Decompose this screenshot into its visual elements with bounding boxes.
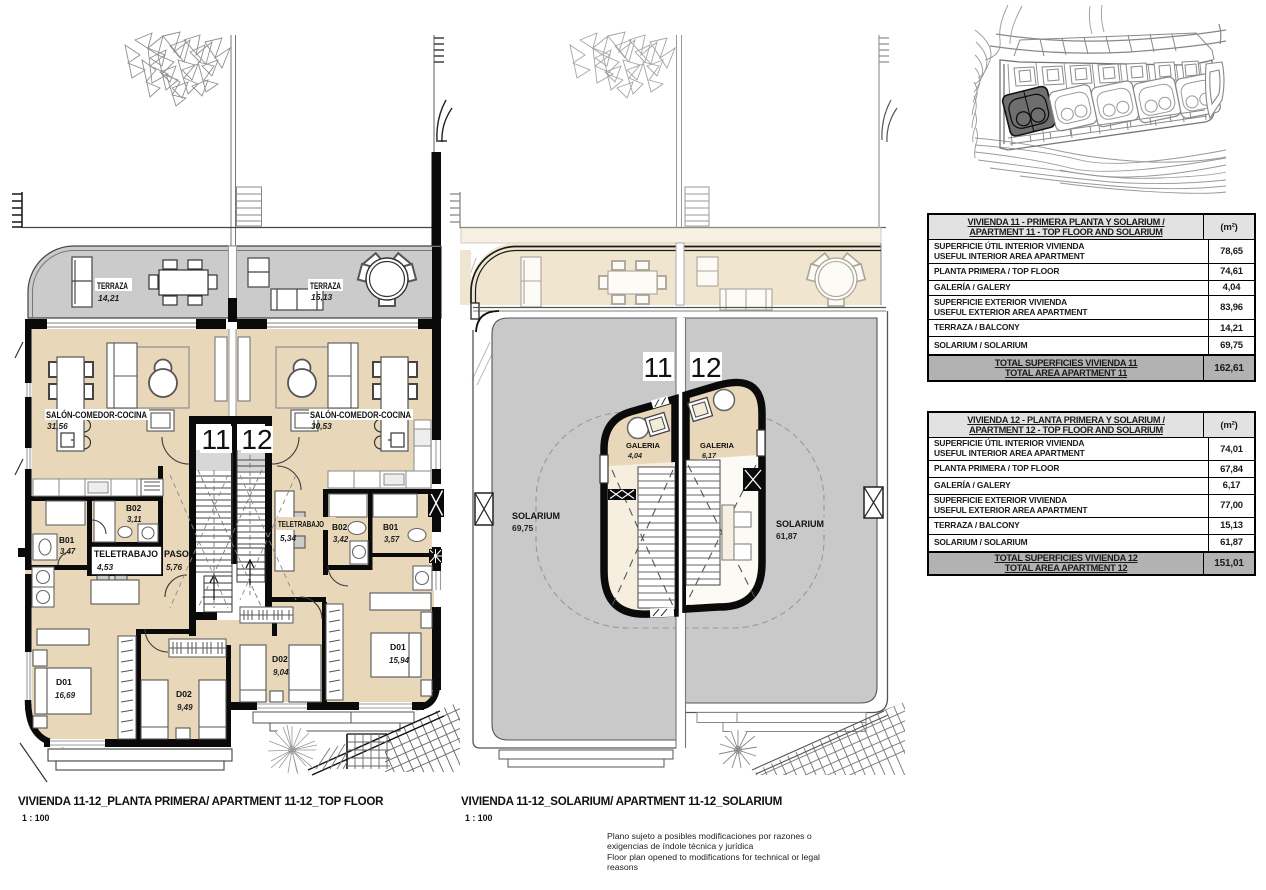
svg-text:9,49: 9,49 [177,703,193,712]
svg-text:3,11: 3,11 [127,515,142,524]
svg-text:D02: D02 [176,689,192,699]
svg-text:14,21: 14,21 [98,293,120,303]
svg-text:9,04: 9,04 [273,668,289,677]
svg-text:TERRAZA: TERRAZA [97,281,128,292]
svg-text:12: 12 [241,424,272,455]
svg-text:TELETRABAJO: TELETRABAJO [278,519,324,529]
svg-text:PASO: PASO [164,549,189,559]
svg-text:3,42: 3,42 [333,535,349,544]
svg-text:5,34: 5,34 [280,533,297,543]
svg-text:SOLARIUM: SOLARIUM [776,519,824,529]
svg-text:D01: D01 [56,677,72,687]
svg-text:6,17: 6,17 [702,451,717,460]
svg-text:11: 11 [201,424,230,455]
svg-text:15,94: 15,94 [389,656,410,665]
svg-text:5,76: 5,76 [166,562,183,572]
svg-text:30,53: 30,53 [311,421,332,431]
svg-text:B01: B01 [383,522,399,532]
svg-text:16,69: 16,69 [55,691,76,700]
svg-text:GALERIA: GALERIA [626,441,661,450]
svg-text:4,04: 4,04 [627,451,642,460]
svg-text:4,53: 4,53 [96,562,114,572]
svg-text:TELETRABAJO: TELETRABAJO [94,549,158,559]
svg-text:11: 11 [643,352,672,383]
svg-text:B02: B02 [126,503,142,513]
svg-text:TERRAZA: TERRAZA [310,281,341,292]
svg-text:69,75: 69,75 [512,523,534,533]
svg-text:GALERIA: GALERIA [700,441,735,450]
svg-text:31,56: 31,56 [47,421,68,431]
svg-text:SALÓN-COMEDOR-COCINA: SALÓN-COMEDOR-COCINA [310,409,411,420]
svg-text:B02: B02 [332,522,348,532]
svg-text:SALÓN-COMEDOR-COCINA: SALÓN-COMEDOR-COCINA [46,409,147,420]
svg-text:3,47: 3,47 [60,547,76,556]
svg-text:12: 12 [690,352,721,383]
svg-text:3,57: 3,57 [384,535,400,544]
svg-text:D01: D01 [390,642,406,652]
svg-text:B01: B01 [59,535,75,545]
svg-text:15,13: 15,13 [311,292,333,302]
svg-text:SOLARIUM: SOLARIUM [512,511,560,521]
svg-text:D02: D02 [272,654,288,664]
svg-text:61,87: 61,87 [776,531,798,541]
